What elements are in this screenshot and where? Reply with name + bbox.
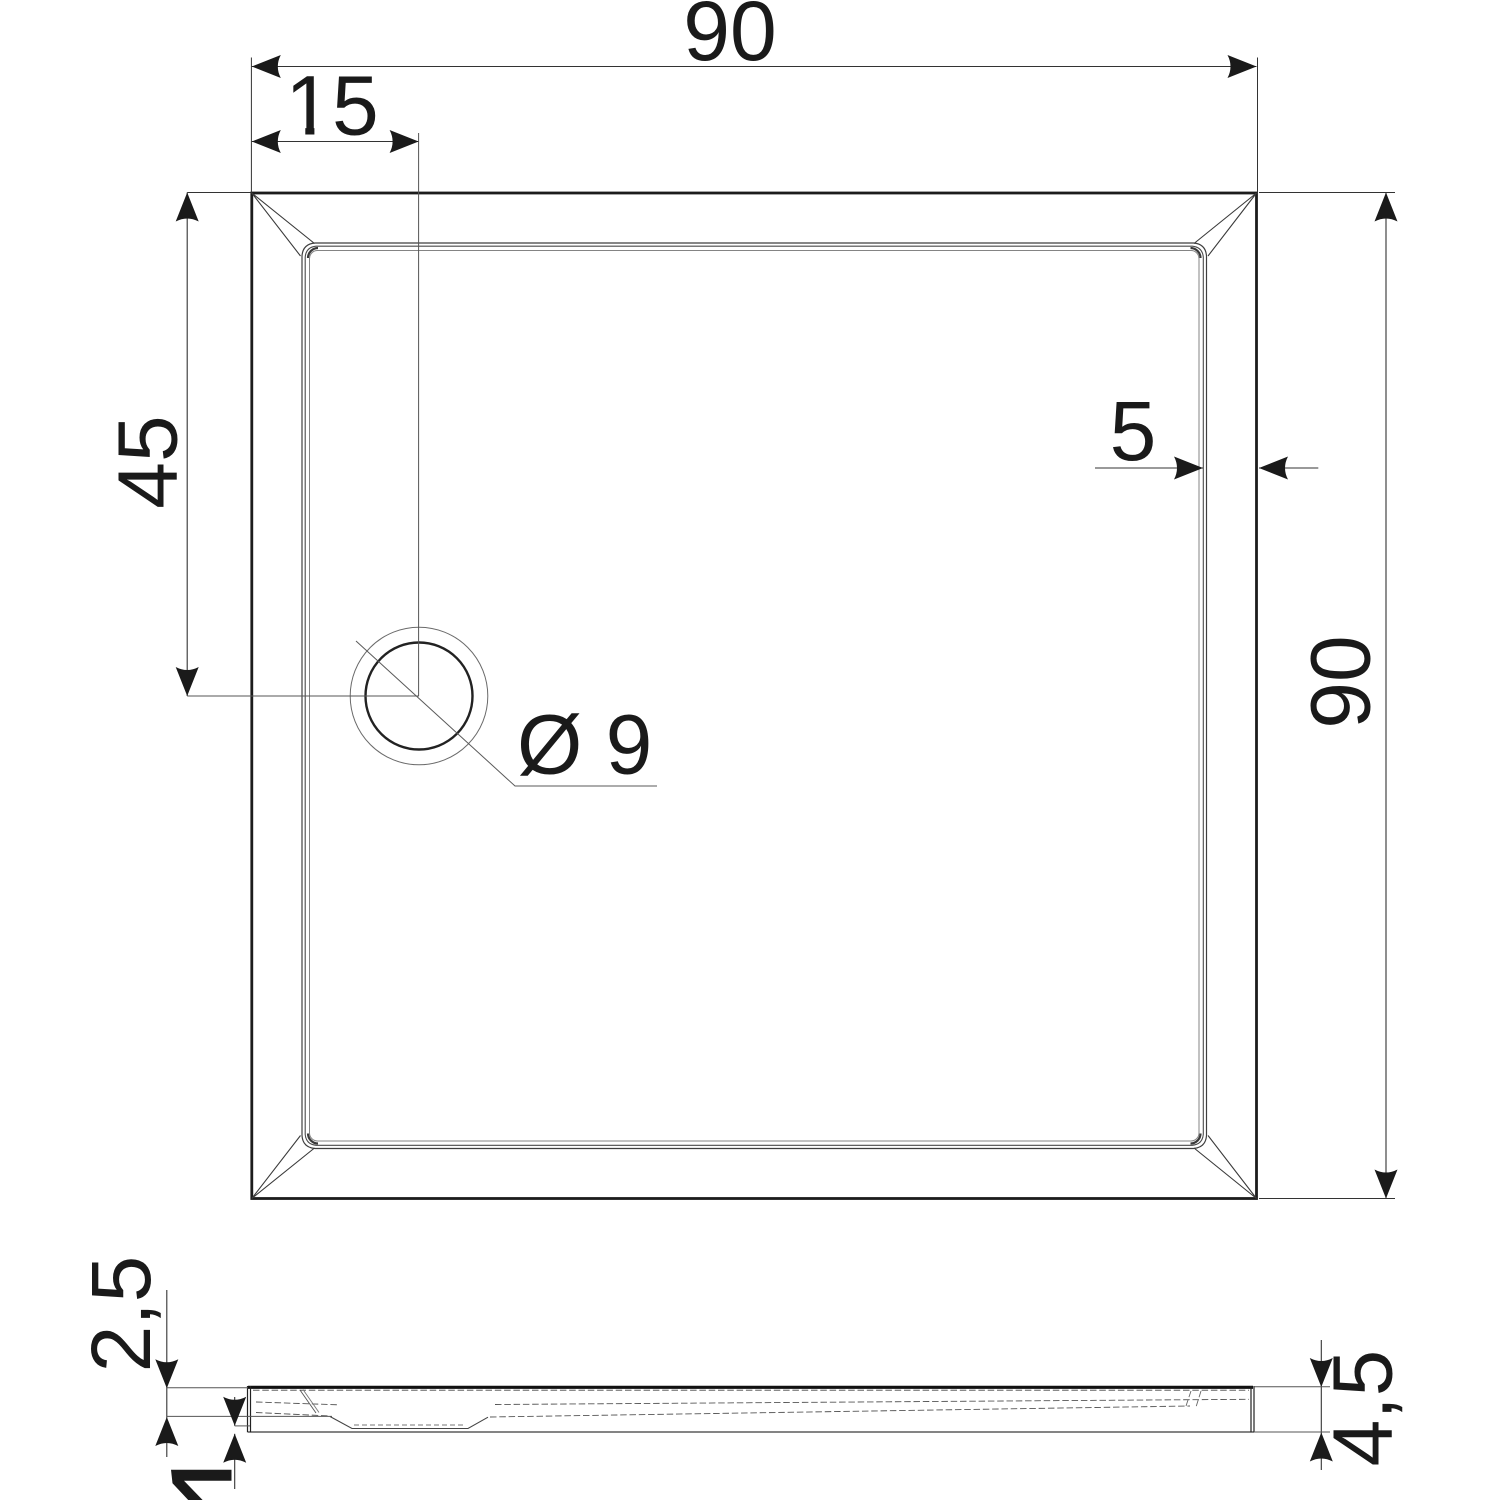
svg-text:90: 90	[683, 0, 776, 78]
svg-text:Ø 9: Ø 9	[517, 698, 652, 792]
svg-text:45: 45	[101, 415, 195, 508]
svg-text:4,5: 4,5	[1316, 1350, 1410, 1467]
svg-text:15: 15	[285, 59, 378, 153]
svg-text:5: 5	[1110, 384, 1157, 478]
svg-text:90: 90	[1294, 635, 1388, 728]
svg-text:2,5: 2,5	[74, 1256, 168, 1373]
